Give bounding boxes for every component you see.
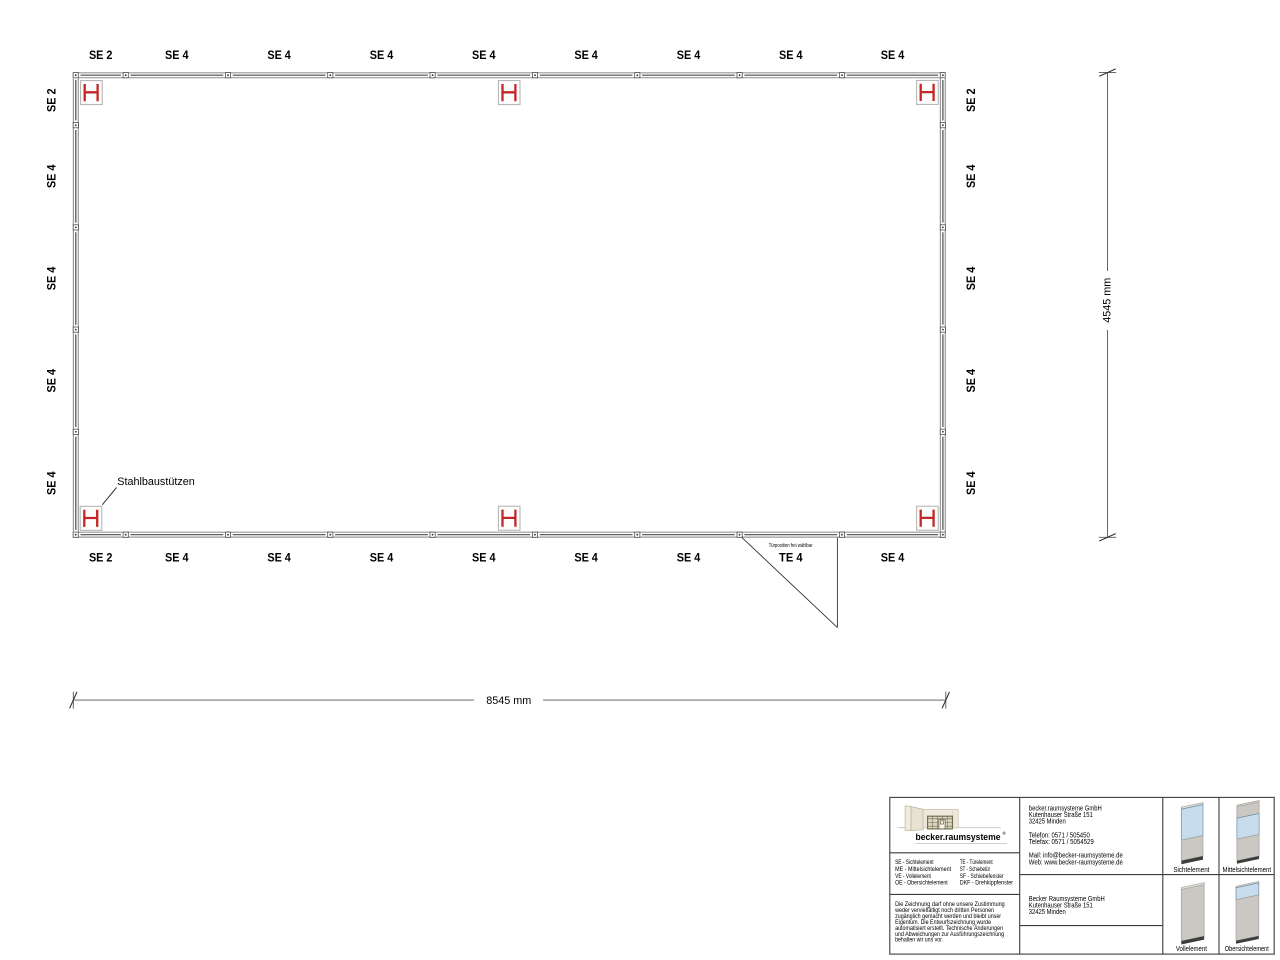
svg-text:SE 4: SE 4 xyxy=(267,550,291,564)
svg-text:DKF - Drehkippfenster: DKF - Drehkippfenster xyxy=(960,880,1014,887)
svg-text:Mittelsichtelement: Mittelsichtelement xyxy=(1223,865,1272,874)
svg-text:SE 4: SE 4 xyxy=(881,48,905,62)
svg-text:behalten wir uns vor.: behalten wir uns vor. xyxy=(895,937,943,944)
svg-text:SE 2: SE 2 xyxy=(964,88,978,112)
svg-text:Web: www.becker-raumsysteme.de: Web: www.becker-raumsysteme.de xyxy=(1029,857,1123,866)
svg-text:SE 4: SE 4 xyxy=(964,369,978,393)
svg-text:SE 4: SE 4 xyxy=(370,550,394,564)
svg-text:4545 mm: 4545 mm xyxy=(1102,278,1114,323)
svg-text:SE 4: SE 4 xyxy=(370,48,394,62)
svg-text:SE 4: SE 4 xyxy=(677,48,701,62)
svg-text:SE 4: SE 4 xyxy=(45,471,59,495)
svg-text:SE 4: SE 4 xyxy=(964,164,978,188)
svg-text:Sichtelement: Sichtelement xyxy=(1173,865,1209,874)
svg-text:SE 4: SE 4 xyxy=(472,48,496,62)
svg-text:TE 4: TE 4 xyxy=(779,550,803,564)
svg-text:8545 mm: 8545 mm xyxy=(486,695,531,707)
svg-text:SE 4: SE 4 xyxy=(881,550,905,564)
svg-text:SE 4: SE 4 xyxy=(267,48,291,62)
svg-text:SE 4: SE 4 xyxy=(677,550,701,564)
svg-text:Türposition frei wählbar: Türposition frei wählbar xyxy=(769,543,813,549)
svg-text:SE 4: SE 4 xyxy=(165,48,189,62)
svg-text:SE 4: SE 4 xyxy=(45,267,59,291)
svg-text:SE 2: SE 2 xyxy=(89,48,113,62)
svg-text:SE 4: SE 4 xyxy=(45,369,59,393)
svg-text:32425 Minden: 32425 Minden xyxy=(1029,816,1066,825)
svg-text:SE 4: SE 4 xyxy=(45,164,59,188)
svg-text:SE 4: SE 4 xyxy=(964,267,978,291)
svg-text:SE 4: SE 4 xyxy=(472,550,496,564)
svg-text:Vollelement: Vollelement xyxy=(1176,944,1207,953)
svg-text:SE 2: SE 2 xyxy=(45,88,59,112)
svg-text:SE 4: SE 4 xyxy=(574,48,598,62)
svg-text:Obersichtelement: Obersichtelement xyxy=(1225,944,1269,953)
svg-text:SE 2: SE 2 xyxy=(89,550,113,564)
svg-text:SE 4: SE 4 xyxy=(964,471,978,495)
svg-text:becker.raumsysteme: becker.raumsysteme xyxy=(916,832,1001,842)
svg-text:SE 4: SE 4 xyxy=(165,550,189,564)
svg-text:OE - Obersichtelement: OE - Obersichtelement xyxy=(895,880,948,887)
svg-text:SE 4: SE 4 xyxy=(574,550,598,564)
svg-text:Telefax: 0571 / 5054529: Telefax: 0571 / 5054529 xyxy=(1029,837,1094,846)
svg-text:Stahlbaustützen: Stahlbaustützen xyxy=(117,476,194,488)
svg-text:32425 Minden: 32425 Minden xyxy=(1029,907,1066,916)
svg-text:SE 4: SE 4 xyxy=(779,48,803,62)
